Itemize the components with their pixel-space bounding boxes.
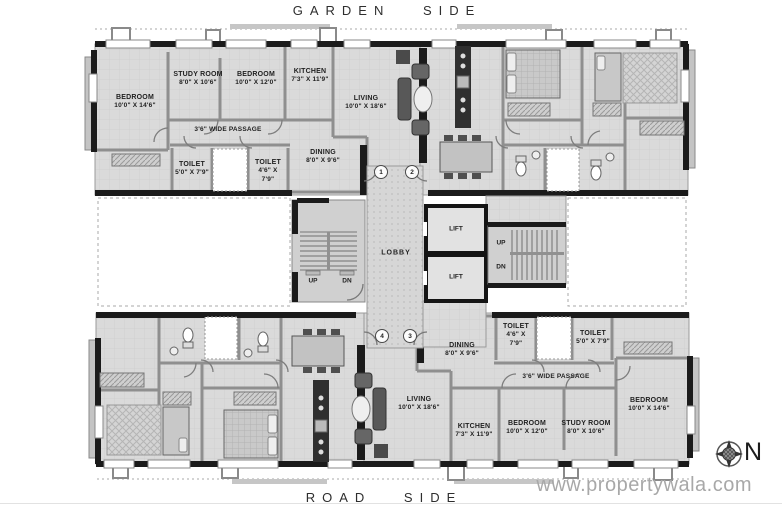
- room-dims: 10'0" X 18'6": [398, 404, 440, 412]
- stairs-left-down-label: DN: [342, 278, 351, 285]
- room-name: KITCHEN: [455, 422, 492, 431]
- room-label-toilet-small-br: TOILET 4'6" X 7'9": [503, 322, 529, 348]
- room-dims: 5'0" X 7'9": [175, 169, 209, 177]
- room-dims: 7'3" X 11'9": [455, 431, 492, 439]
- room-name: LIVING: [398, 395, 440, 404]
- staircase-right: [488, 222, 566, 288]
- room-dims: 5'0" X 7'9": [576, 338, 610, 346]
- lift-bottom-label: LIFT: [449, 274, 463, 281]
- room-label-study-br: STUDY ROOM 8'0" X 10'6": [561, 419, 610, 437]
- room-dims: 7'9": [255, 176, 281, 184]
- room-name: 3'6" WIDE PASSAGE: [194, 126, 261, 134]
- lift-top-label: LIFT: [449, 226, 463, 233]
- corridor-below-lifts: [423, 301, 486, 347]
- room-label-bedroom-large-br: BEDROOM 10'0" X 14'6": [628, 396, 670, 414]
- room-label-bedroom-small-tl: BEDROOM 10'0" X 12'0": [235, 70, 277, 88]
- room-name: BEDROOM: [235, 70, 277, 79]
- room-name: BEDROOM: [114, 93, 156, 102]
- room-dims: 8'0" X 10'6": [173, 79, 222, 87]
- room-dims: 10'0" X 14'6": [114, 102, 156, 110]
- room-label-toilet-large-tl: TOILET 5'0" X 7'9": [175, 160, 209, 178]
- room-dims: 8'0" X 9'6": [306, 157, 340, 165]
- stairs-right-down-label: DN: [496, 264, 505, 271]
- room-dims: 10'0" X 12'0": [235, 79, 277, 87]
- corridor-right: [486, 196, 566, 226]
- lobby-label: LOBBY: [381, 250, 411, 257]
- room-label-bedroom-small-br: BEDROOM 10'0" X 12'0": [506, 419, 548, 437]
- stairs-right-up-label: UP: [496, 240, 505, 247]
- flat-marker-1: 1: [374, 165, 388, 179]
- courtyard-left: [98, 198, 290, 306]
- room-dims: 4'6" X: [503, 331, 529, 339]
- room-name: 3'6" WIDE PASSAGE: [522, 373, 589, 381]
- room-name: TOILET: [175, 160, 209, 169]
- compass-north-label: N: [744, 438, 762, 467]
- staircase-left: [292, 198, 365, 302]
- room-label-study-tl: STUDY ROOM 8'0" X 10'6": [173, 70, 222, 88]
- room-dims: 10'0" X 18'6": [345, 103, 387, 111]
- room-name: DINING: [445, 341, 479, 350]
- room-label-passage-br: 3'6" WIDE PASSAGE: [522, 373, 589, 381]
- courtyard-right: [568, 198, 686, 306]
- room-label-kitchen-tl: KITCHEN 7'3" X 11'9": [291, 67, 328, 85]
- room-dims: 10'0" X 12'0": [506, 428, 548, 436]
- room-name: KITCHEN: [291, 67, 328, 76]
- flat-marker-3: 3: [403, 329, 417, 343]
- room-name: STUDY ROOM: [173, 70, 222, 79]
- room-label-bedroom-large-tl: BEDROOM 10'0" X 14'6": [114, 93, 156, 111]
- compass-icon: [715, 440, 743, 468]
- watermark: www.propertywala.com: [536, 474, 752, 497]
- room-dims: 8'0" X 9'6": [445, 350, 479, 358]
- lift-shafts: [423, 206, 486, 301]
- flat-marker-2: 2: [405, 165, 419, 179]
- room-dims: 10'0" X 14'6": [628, 405, 670, 413]
- room-name: BEDROOM: [506, 419, 548, 428]
- room-dims: 4'6" X: [255, 167, 281, 175]
- room-label-dining-br: DINING 8'0" X 9'6": [445, 341, 479, 359]
- room-name: STUDY ROOM: [561, 419, 610, 428]
- floor-plan-page: GARDEN SIDE ROAD SIDE www.propertywala.c…: [0, 0, 782, 507]
- flat-marker-4: 4: [375, 329, 389, 343]
- room-dims: 7'9": [503, 340, 529, 348]
- room-label-toilet-large-br: TOILET 5'0" X 7'9": [576, 329, 610, 347]
- garden-side-label: GARDEN SIDE: [293, 3, 482, 18]
- room-label-living-br: LIVING 10'0" X 18'6": [398, 395, 440, 413]
- room-label-kitchen-br: KITCHEN 7'3" X 11'9": [455, 422, 492, 440]
- stairs-left-up-label: UP: [308, 278, 317, 285]
- room-label-living-tl: LIVING 10'0" X 18'6": [345, 94, 387, 112]
- room-dims: 8'0" X 10'6": [561, 428, 610, 436]
- room-name: TOILET: [503, 322, 529, 331]
- room-label-toilet-small-tl: TOILET 4'6" X 7'9": [255, 158, 281, 184]
- room-name: TOILET: [255, 158, 281, 167]
- room-name: TOILET: [576, 329, 610, 338]
- page-divider: [0, 503, 782, 504]
- room-name: BEDROOM: [628, 396, 670, 405]
- room-name: LIVING: [345, 94, 387, 103]
- room-label-passage-tl: 3'6" WIDE PASSAGE: [194, 126, 261, 134]
- room-name: DINING: [306, 148, 340, 157]
- lobby-floor: [367, 166, 423, 348]
- room-dims: 7'3" X 11'9": [291, 76, 328, 84]
- room-label-dining-tl: DINING 8'0" X 9'6": [306, 148, 340, 166]
